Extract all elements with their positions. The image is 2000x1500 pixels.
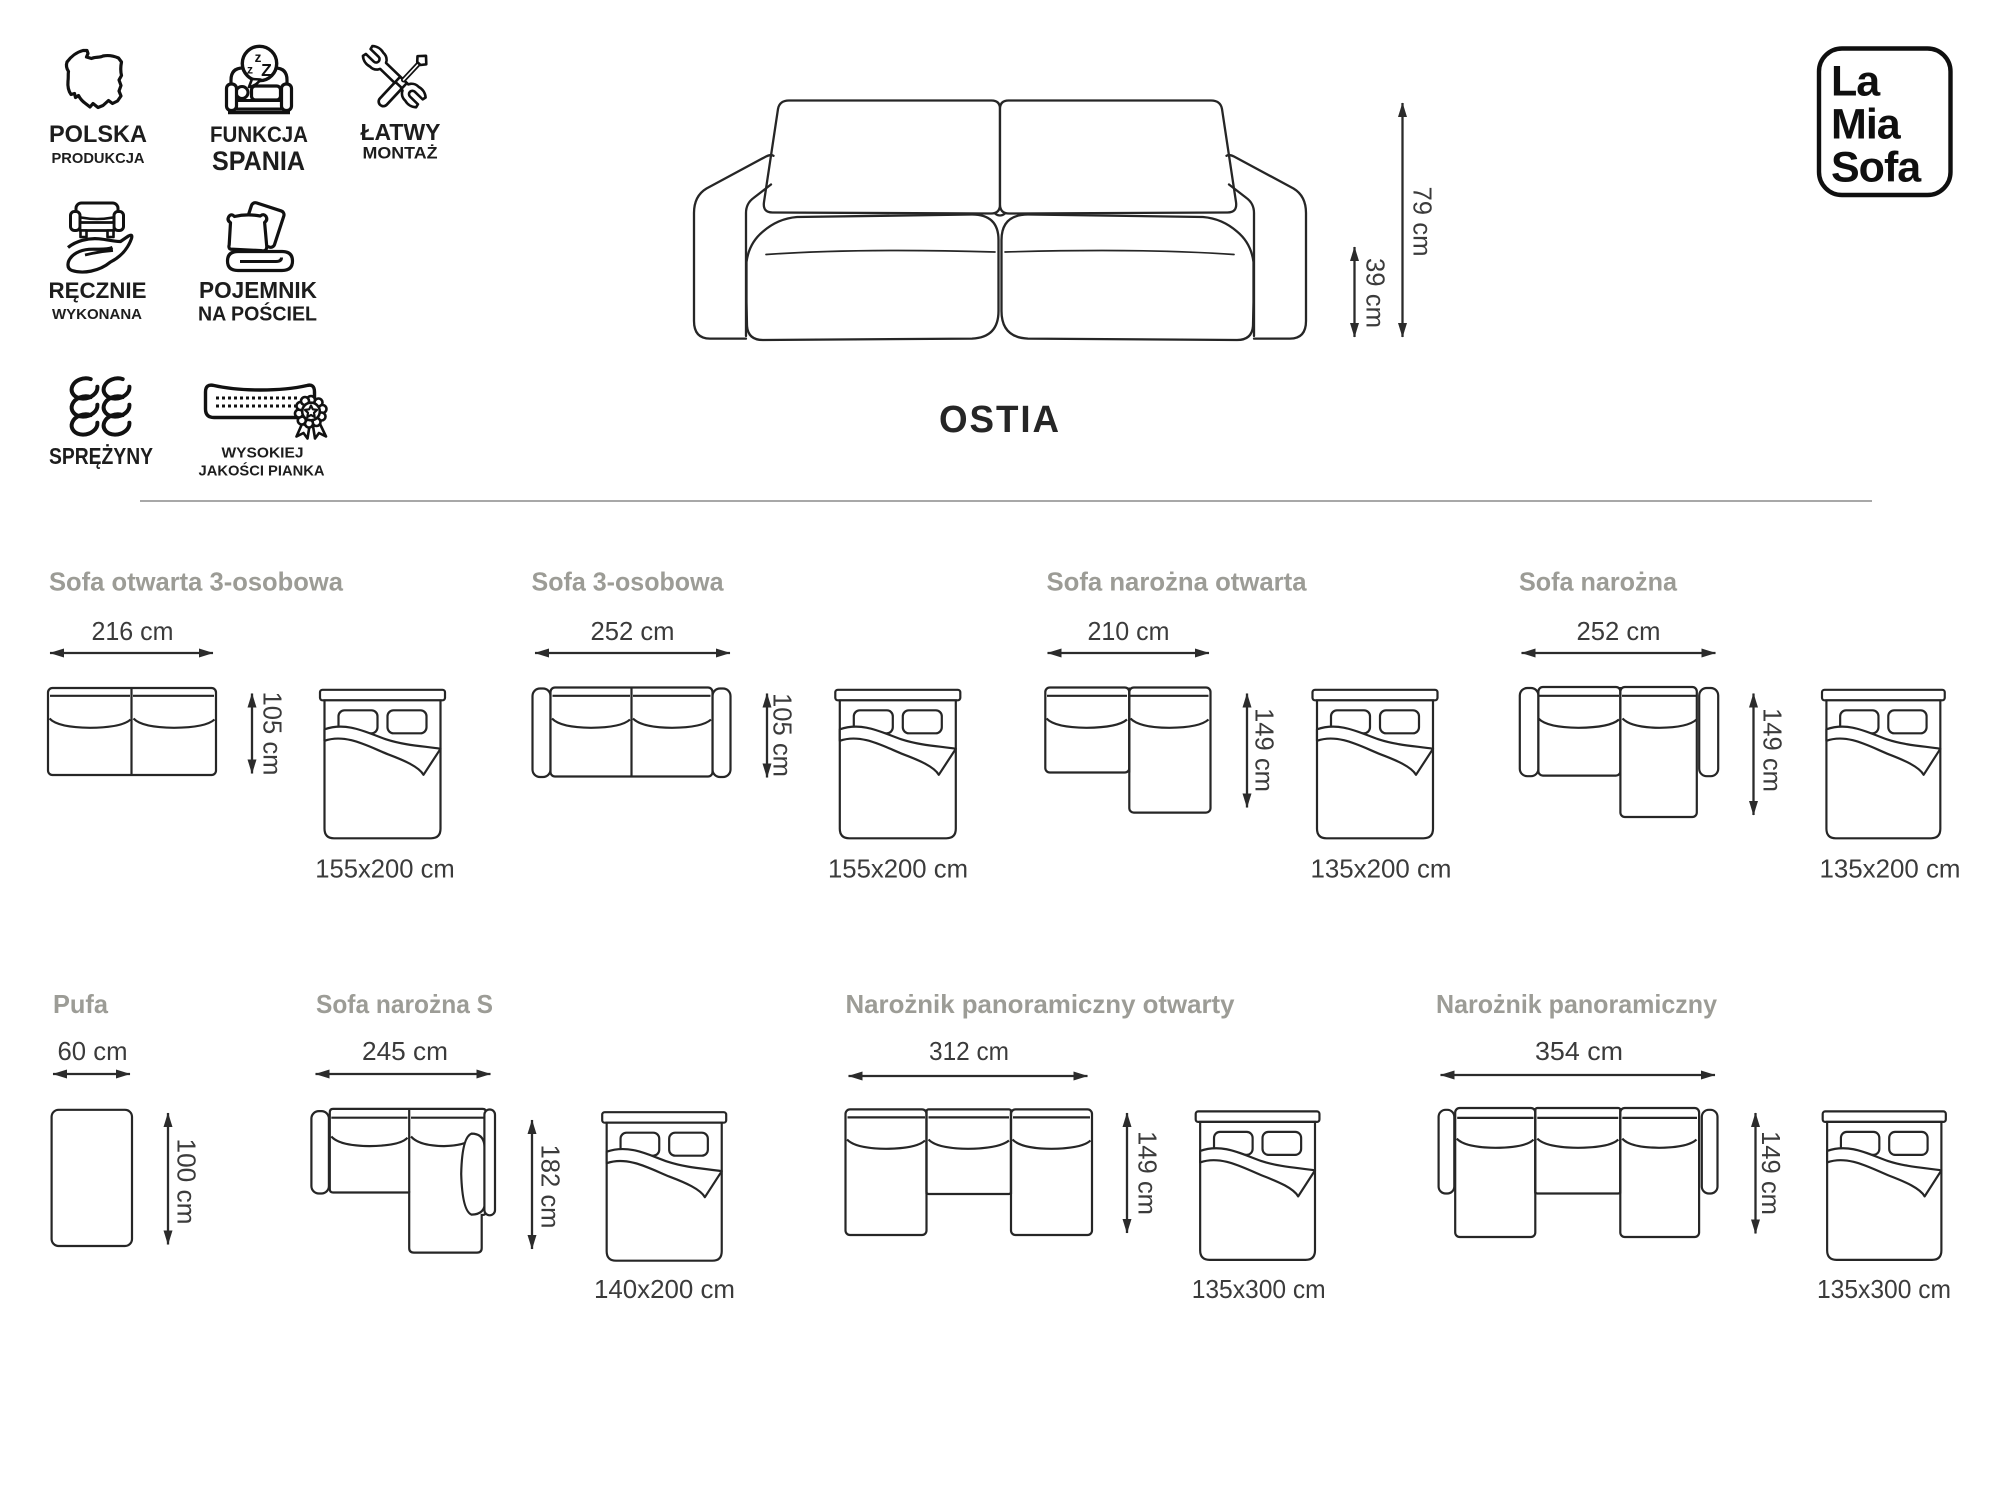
svg-text:252 cm: 252 cm — [591, 616, 675, 646]
svg-text:60 cm: 60 cm — [58, 1036, 128, 1066]
svg-text:354 cm: 354 cm — [1535, 1036, 1623, 1066]
svg-text:216 cm: 216 cm — [92, 616, 174, 646]
svg-text:149 cm: 149 cm — [1133, 1131, 1163, 1215]
svg-text:POJEMNIK: POJEMNIK — [199, 277, 317, 303]
svg-text:135x300 cm: 135x300 cm — [1192, 1274, 1326, 1304]
svg-text:312 cm: 312 cm — [929, 1036, 1009, 1066]
svg-text:Sofa narożna S: Sofa narożna S — [316, 989, 493, 1019]
svg-text:100 cm: 100 cm — [172, 1139, 202, 1225]
svg-text:135x200 cm: 135x200 cm — [1311, 854, 1452, 884]
svg-text:WYSOKIEJ: WYSOKIEJ — [222, 445, 304, 462]
svg-text:WYKONANA: WYKONANA — [52, 306, 142, 323]
svg-text:POLSKA: POLSKA — [49, 121, 147, 148]
svg-text:JAKOŚCI PIANKA: JAKOŚCI PIANKA — [199, 462, 325, 480]
svg-text:z: z — [247, 63, 253, 77]
svg-text:79 cm: 79 cm — [1408, 187, 1438, 257]
svg-text:SPANIA: SPANIA — [212, 146, 305, 176]
svg-text:ŁATWY: ŁATWY — [361, 119, 441, 145]
svg-text:SPRĘŻYNY: SPRĘŻYNY — [49, 443, 153, 469]
svg-text:39 cm: 39 cm — [1361, 258, 1391, 328]
svg-text:149 cm: 149 cm — [1250, 708, 1280, 792]
svg-text:Sofa: Sofa — [1831, 144, 1922, 192]
svg-text:155x200 cm: 155x200 cm — [315, 854, 455, 884]
svg-text:Sofa otwarta 3-osobowa: Sofa otwarta 3-osobowa — [49, 567, 344, 597]
svg-text:Narożnik panoramiczny: Narożnik panoramiczny — [1436, 989, 1718, 1019]
svg-text:OSTIA: OSTIA — [939, 399, 1061, 441]
svg-text:Pufa: Pufa — [53, 989, 109, 1019]
svg-text:RĘCZNIE: RĘCZNIE — [49, 278, 147, 303]
svg-text:245 cm: 245 cm — [362, 1036, 448, 1066]
svg-text:135x200 cm: 135x200 cm — [1820, 854, 1961, 884]
svg-text:MONTAŻ: MONTAŻ — [363, 144, 438, 163]
svg-text:135x300 cm: 135x300 cm — [1817, 1274, 1951, 1304]
svg-text:Mia: Mia — [1831, 101, 1902, 149]
svg-text:105 cm: 105 cm — [258, 692, 288, 776]
svg-text:Narożnik panoramiczny otwarty: Narożnik panoramiczny otwarty — [846, 989, 1236, 1019]
svg-text:210 cm: 210 cm — [1088, 616, 1170, 646]
svg-text:105 cm: 105 cm — [768, 693, 798, 777]
svg-text:149 cm: 149 cm — [1758, 708, 1788, 792]
svg-text:252 cm: 252 cm — [1577, 616, 1661, 646]
svg-text:182 cm: 182 cm — [536, 1145, 566, 1229]
svg-text:149 cm: 149 cm — [1756, 1131, 1786, 1215]
svg-text:Sofa narożna: Sofa narożna — [1519, 567, 1678, 597]
svg-text:Z: Z — [261, 60, 272, 80]
svg-text:155x200 cm: 155x200 cm — [828, 854, 968, 884]
svg-text:PRODUKCJA: PRODUKCJA — [52, 150, 145, 167]
svg-text:NA POŚCIEL: NA POŚCIEL — [198, 302, 317, 326]
svg-text:140x200 cm: 140x200 cm — [594, 1274, 735, 1304]
svg-text:Sofa 3-osobowa: Sofa 3-osobowa — [532, 567, 725, 597]
svg-text:La: La — [1831, 58, 1881, 106]
svg-text:Sofa narożna otwarta: Sofa narożna otwarta — [1047, 567, 1308, 597]
svg-text:FUNKCJA: FUNKCJA — [210, 122, 308, 147]
